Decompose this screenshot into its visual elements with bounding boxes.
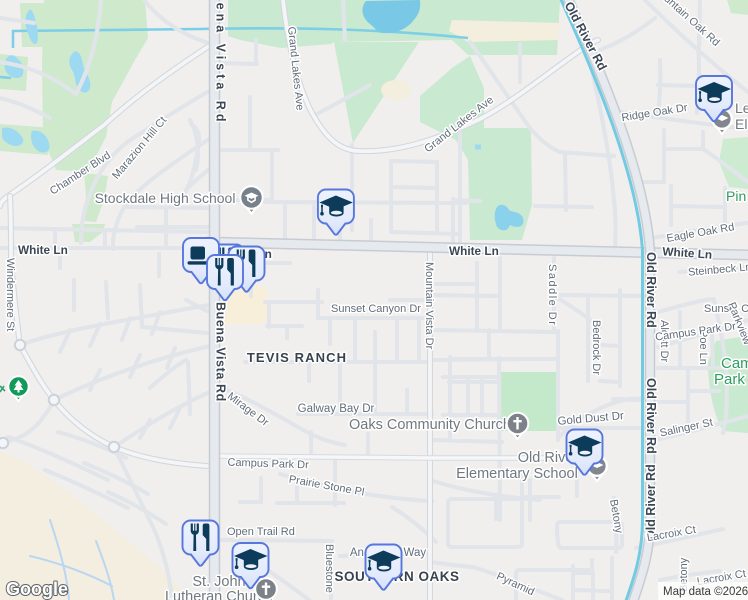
svg-text:Mountain Vista Dr: Mountain Vista Dr — [423, 262, 435, 350]
svg-text:Park N: Park N — [714, 371, 748, 388]
svg-text:Stockdale High School: Stockdale High School — [95, 190, 236, 206]
svg-text:Open Trail Rd: Open Trail Rd — [227, 526, 295, 538]
svg-text:Sunset Canyon Dr: Sunset Canyon Dr — [331, 303, 421, 315]
svg-text:Elementary School: Elementary School — [456, 466, 578, 482]
svg-text:Campus: Campus — [721, 355, 748, 372]
svg-text:Windermere St: Windermere St — [4, 258, 16, 331]
svg-text:Google: Google — [6, 579, 68, 599]
svg-text:Pin Oak: Pin Oak — [726, 188, 748, 204]
svg-text:Old River Rd: Old River Rd — [644, 252, 658, 328]
svg-text:Le: Le — [735, 100, 748, 116]
svg-text:Old River Rd: Old River Rd — [644, 464, 658, 540]
svg-text:Old River Rd: Old River Rd — [644, 378, 658, 454]
svg-text:TEVIS RANCH: TEVIS RANCH — [247, 350, 347, 365]
svg-text:Bluestone: Bluestone — [323, 544, 335, 593]
svg-text:Map data ©2026: Map data ©2026 — [663, 586, 748, 598]
svg-text:Galway Bay Dr: Galway Bay Dr — [298, 403, 375, 415]
svg-text:Bedrock Dr: Bedrock Dr — [590, 320, 602, 375]
svg-text:Saddle Dr: Saddle Dr — [546, 264, 558, 326]
svg-text:Oaks Community Church: Oaks Community Church — [349, 417, 511, 433]
svg-text:Buena Vista Rd: Buena Vista Rd — [214, 302, 228, 402]
svg-text:White Ln: White Ln — [449, 244, 499, 258]
svg-text:Buena Vista Rd: Buena Vista Rd — [214, 0, 228, 125]
svg-text:Ele: Ele — [735, 116, 748, 132]
svg-text:White Ln: White Ln — [18, 243, 68, 257]
